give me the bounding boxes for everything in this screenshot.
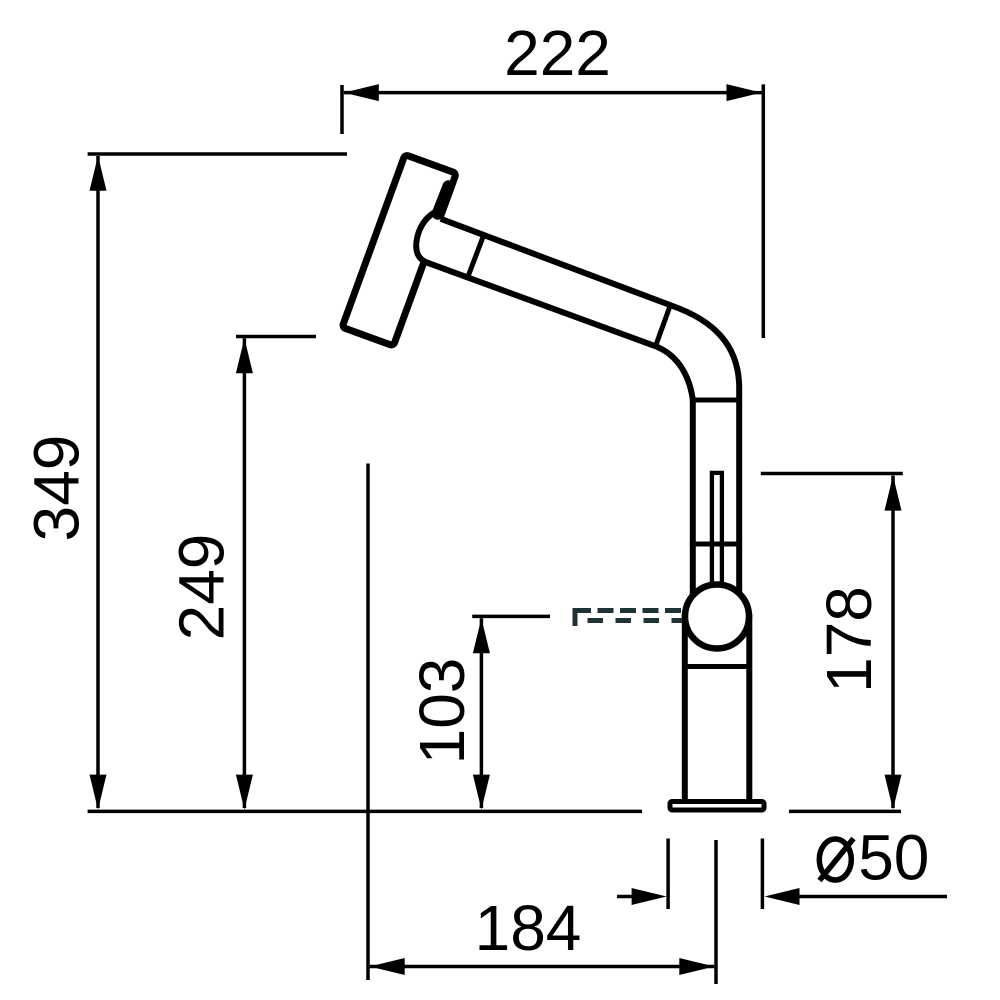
svg-text:50: 50 bbox=[858, 822, 929, 894]
svg-text:222: 222 bbox=[504, 17, 611, 89]
svg-text:349: 349 bbox=[21, 435, 93, 542]
svg-text:184: 184 bbox=[475, 892, 582, 964]
svg-text:249: 249 bbox=[166, 534, 238, 641]
svg-text:103: 103 bbox=[406, 658, 478, 765]
svg-text:178: 178 bbox=[813, 586, 885, 693]
